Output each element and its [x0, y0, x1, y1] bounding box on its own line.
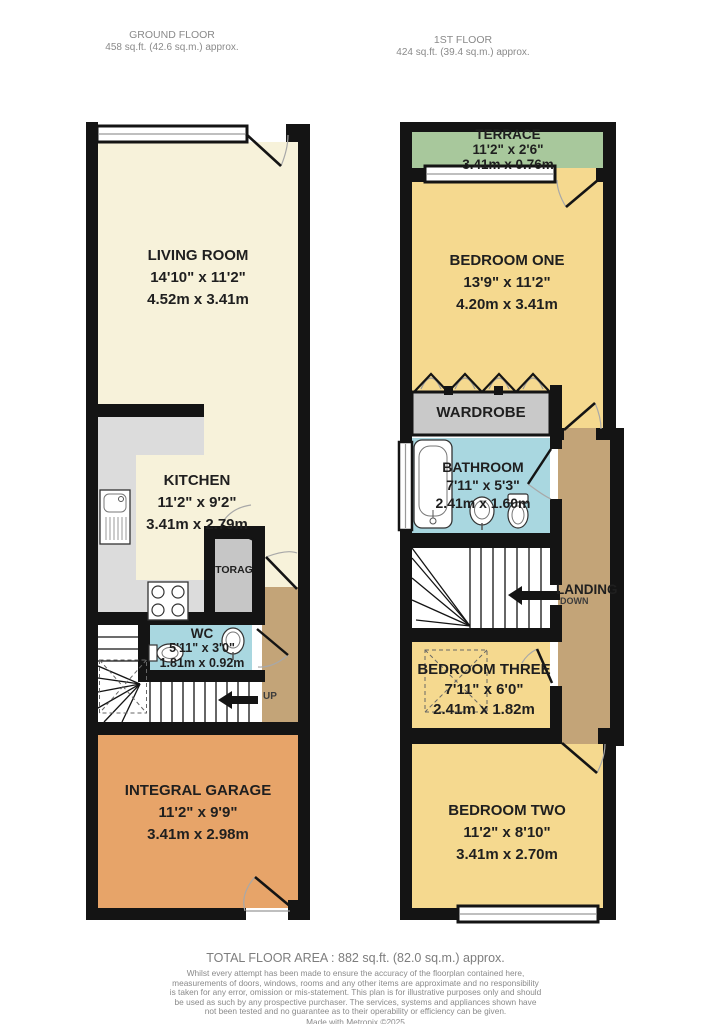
bedroom-one-label: BEDROOM ONE 13'9" x 11'2" 4.20m x 3.41m	[449, 250, 564, 316]
garage-name: INTEGRAL GARAGE	[125, 780, 271, 802]
living-room-window	[97, 126, 247, 142]
garage-imperial: 11'2" x 9'9"	[125, 802, 271, 824]
wc-metric: 1.81m x 0.92m	[160, 656, 245, 671]
ground-floor-title: GROUND FLOOR	[62, 29, 282, 42]
stairs-up-label: UP	[263, 691, 277, 702]
bedroom-three-imperial: 7'11" x 6'0"	[417, 680, 550, 700]
bedroom-three-label: BEDROOM THREE 7'11" x 6'0" 2.41m x 1.82m	[417, 660, 550, 720]
bedroom-two-label: BEDROOM TWO 11'2" x 8'10" 3.41m x 2.70m	[448, 800, 566, 866]
bathroom-label: BATHROOM 7'11" x 5'3" 2.41m x 1.60m	[436, 458, 531, 512]
footer: TOTAL FLOOR AREA : 882 sq.ft. (82.0 sq.m…	[0, 951, 711, 1024]
kitchen-imperial: 11'2" x 9'2"	[146, 492, 248, 514]
garage-metric: 3.41m x 2.98m	[125, 824, 271, 846]
bathroom-metric: 2.41m x 1.60m	[436, 494, 531, 512]
terrace-name: TERRACE	[462, 127, 554, 142]
metropix-credit: Made with Metropix ©2025	[0, 1017, 711, 1024]
kitchen-sink	[100, 490, 130, 544]
kitchen-label: KITCHEN 11'2" x 9'2" 3.41m x 2.79m	[146, 470, 248, 536]
bedroom-three-metric: 2.41m x 1.82m	[417, 700, 550, 720]
garage-label: INTEGRAL GARAGE 11'2" x 9'9" 3.41m x 2.9…	[125, 780, 271, 846]
bedroom-one-metric: 4.20m x 3.41m	[449, 294, 564, 316]
floorplan-drawing	[0, 0, 711, 1024]
floorplan-page: GROUND FLOOR 458 sq.ft. (42.6 sq.m.) app…	[0, 0, 711, 1024]
wc-label: WC 5'11" x 3'0" 1.81m x 0.92m	[160, 626, 245, 671]
living-room-label: LIVING ROOM 14'10" x 11'2" 4.52m x 3.41m	[147, 245, 249, 311]
terrace-door-gap	[555, 168, 598, 182]
terrace-metric: 3.41m x 0.76m	[462, 157, 554, 172]
storage-label: STORAGE	[215, 562, 253, 578]
bedroom-two-metric: 3.41m x 2.70m	[448, 844, 566, 866]
kitchen-metric: 3.41m x 2.79m	[146, 514, 248, 536]
living-room-name: LIVING ROOM	[147, 245, 249, 267]
kitchen-name: KITCHEN	[146, 470, 248, 492]
terrace-imperial: 11'2" x 2'6"	[462, 142, 554, 157]
bedroom-three-name: BEDROOM THREE	[417, 660, 550, 680]
kitchen-stove	[148, 582, 188, 620]
landing-label: LANDING	[556, 581, 622, 597]
bedroom-two-imperial: 11'2" x 8'10"	[448, 822, 566, 844]
disclaimer-text: Whilst every attempt has been made to en…	[170, 969, 542, 1017]
living-room-imperial: 14'10" x 11'2"	[147, 267, 249, 289]
wardrobe-name: WARDROBE	[436, 404, 525, 421]
wc-imperial: 5'11" x 3'0"	[160, 641, 245, 656]
landing-name: LANDING	[556, 582, 618, 597]
wardrobe-label: WARDROBE	[436, 404, 525, 421]
bedroom-one-name: BEDROOM ONE	[449, 250, 564, 272]
bathroom-name: BATHROOM	[436, 458, 531, 476]
bedroom-one-imperial: 13'9" x 11'2"	[449, 272, 564, 294]
bedroom-two-name: BEDROOM TWO	[448, 800, 566, 822]
bedroom-two-door-gap	[562, 728, 598, 744]
storage-name: STORAGE	[215, 564, 253, 576]
first-floor-header: 1ST FLOOR 424 sq.ft. (39.4 sq.m.) approx…	[353, 34, 573, 59]
terrace-label: TERRACE 11'2" x 2'6" 3.41m x 0.76m	[462, 127, 554, 172]
bathroom-imperial: 7'11" x 5'3"	[436, 476, 531, 494]
stairs-down-label: DOWN	[560, 596, 589, 606]
living-room-metric: 4.52m x 3.41m	[147, 289, 249, 311]
first-floor-title: 1ST FLOOR	[353, 34, 573, 47]
ground-floor-area: 458 sq.ft. (42.6 sq.m.) approx.	[62, 42, 282, 54]
total-floor-area: TOTAL FLOOR AREA : 882 sq.ft. (82.0 sq.m…	[0, 951, 711, 965]
wc-name: WC	[160, 626, 245, 641]
first-floor-area: 424 sq.ft. (39.4 sq.m.) approx.	[353, 47, 573, 59]
ground-floor-header: GROUND FLOOR 458 sq.ft. (42.6 sq.m.) app…	[62, 29, 282, 54]
